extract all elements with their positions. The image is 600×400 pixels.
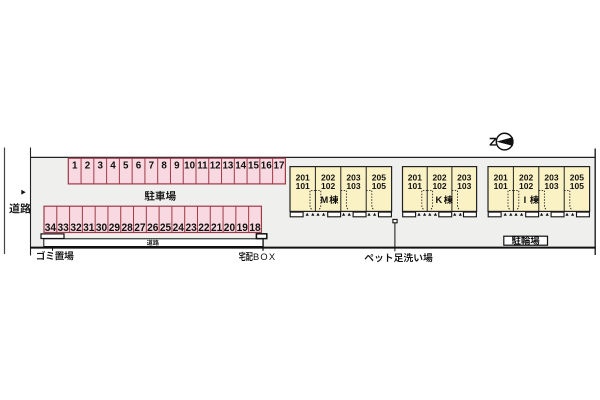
svg-text:17: 17 xyxy=(274,160,285,171)
svg-text:22: 22 xyxy=(198,222,209,234)
svg-text:24: 24 xyxy=(173,222,185,234)
svg-text:12: 12 xyxy=(210,160,221,171)
svg-text:23: 23 xyxy=(185,222,196,234)
svg-text:15: 15 xyxy=(248,160,259,171)
svg-text:6: 6 xyxy=(136,160,142,171)
svg-text:26: 26 xyxy=(147,222,158,234)
svg-text:103: 103 xyxy=(457,181,471,191)
svg-text:10: 10 xyxy=(184,160,195,171)
svg-text:103: 103 xyxy=(544,181,558,191)
svg-text:105: 105 xyxy=(372,181,386,191)
svg-text:2: 2 xyxy=(85,160,91,171)
svg-text:103: 103 xyxy=(346,181,360,191)
svg-text:105: 105 xyxy=(570,181,584,191)
svg-text:33: 33 xyxy=(58,222,69,234)
svg-text:31: 31 xyxy=(83,222,95,234)
svg-text:BOX: BOX xyxy=(253,252,276,262)
svg-text:19: 19 xyxy=(237,222,248,234)
svg-text:102: 102 xyxy=(432,181,446,191)
svg-text:34: 34 xyxy=(45,222,57,234)
svg-text:102: 102 xyxy=(519,181,533,191)
svg-text:32: 32 xyxy=(70,222,81,234)
svg-text:9: 9 xyxy=(174,160,180,171)
svg-text:11: 11 xyxy=(197,160,208,171)
svg-text:4: 4 xyxy=(110,160,116,171)
svg-text:7: 7 xyxy=(149,160,155,171)
svg-text:29: 29 xyxy=(109,222,120,234)
svg-text:101: 101 xyxy=(296,181,310,191)
svg-text:13: 13 xyxy=(222,160,233,171)
svg-text:21: 21 xyxy=(211,222,223,234)
svg-text:14: 14 xyxy=(235,160,246,171)
svg-text:28: 28 xyxy=(121,222,132,234)
svg-text:101: 101 xyxy=(408,181,422,191)
svg-text:30: 30 xyxy=(96,222,107,234)
svg-text:M: M xyxy=(321,195,329,205)
svg-text:27: 27 xyxy=(134,222,145,234)
svg-text:101: 101 xyxy=(494,181,508,191)
svg-text:3: 3 xyxy=(98,160,104,171)
svg-text:K: K xyxy=(435,195,442,205)
svg-text:102: 102 xyxy=(321,181,335,191)
svg-text:5: 5 xyxy=(123,160,129,171)
svg-text:16: 16 xyxy=(261,160,272,171)
svg-text:25: 25 xyxy=(160,222,172,234)
svg-text:I: I xyxy=(524,195,527,205)
svg-text:1: 1 xyxy=(72,160,78,171)
svg-text:8: 8 xyxy=(161,160,167,171)
svg-text:20: 20 xyxy=(224,222,235,234)
svg-text:18: 18 xyxy=(249,222,260,234)
